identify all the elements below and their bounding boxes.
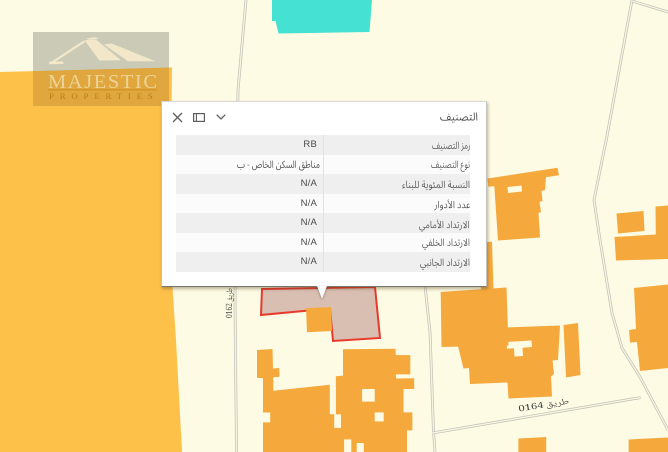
svg-text:PROPERTIES: PROPERTIES: [49, 91, 156, 101]
